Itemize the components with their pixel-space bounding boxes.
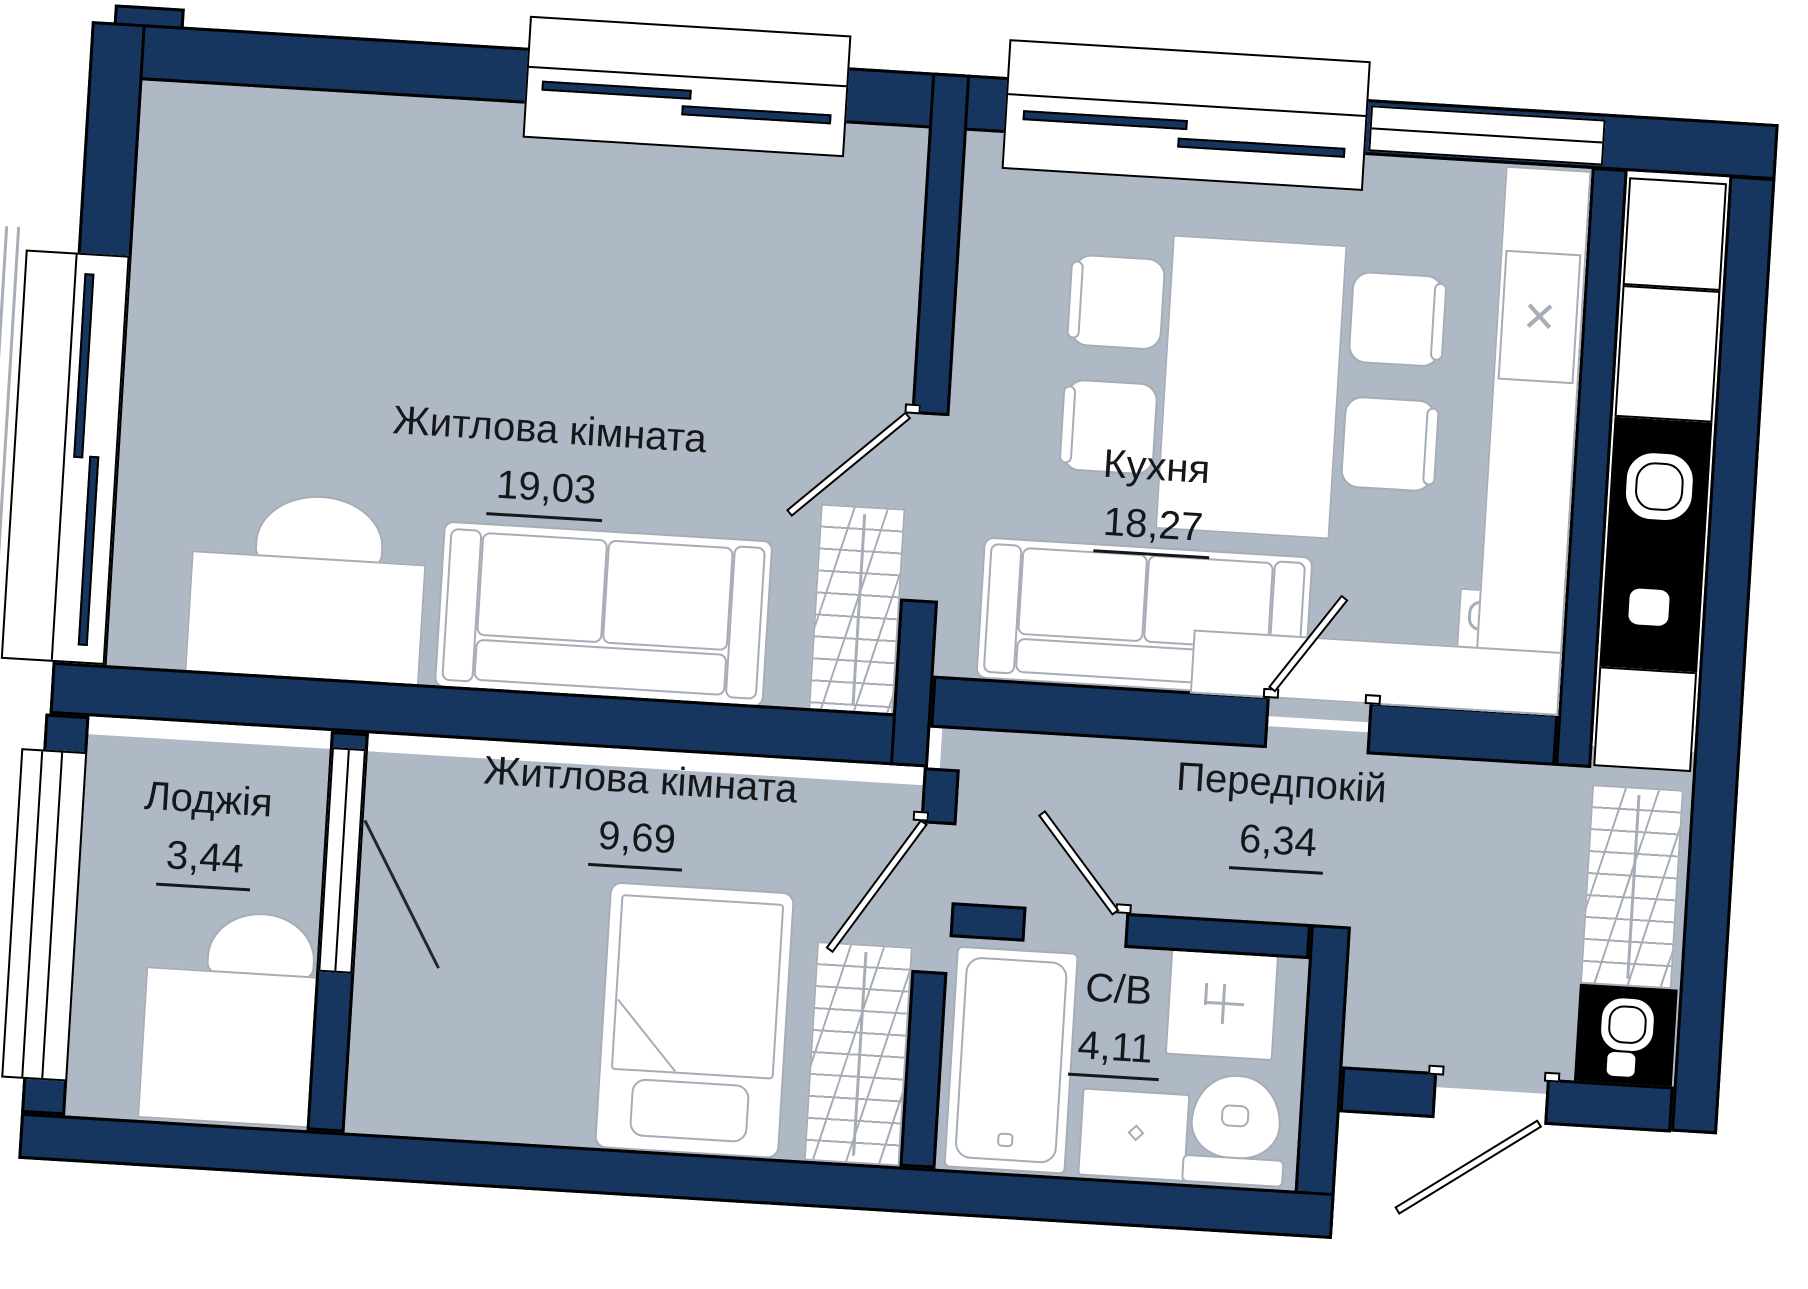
desk xyxy=(184,550,426,686)
room-name: Лоджія xyxy=(143,770,274,830)
vent-duct-icon xyxy=(1598,995,1657,1054)
window-sash xyxy=(1023,110,1188,130)
room-label-loggia: Лоджія 3,44 xyxy=(139,770,274,893)
wall-bathroom-top-left xyxy=(950,902,1027,942)
door-entrance xyxy=(1394,1119,1542,1214)
right-cabinet-box xyxy=(1623,177,1727,291)
room-label-kitchen: Кухня 18,27 xyxy=(1093,437,1216,559)
window-sash xyxy=(78,456,100,646)
room-label-living2: Житлова кімната 9,69 xyxy=(478,744,799,878)
right-cabinet-box xyxy=(1615,285,1721,423)
vent-duct-icon xyxy=(1604,1049,1638,1079)
door-jamb xyxy=(1544,1072,1561,1083)
sofa-living-room-1 xyxy=(434,520,774,707)
bed-pillow xyxy=(629,1078,750,1143)
apartment-floor-plan: ✕ xyxy=(3,2,1802,1285)
washing-machine xyxy=(1165,949,1279,1061)
vent-duct-icon xyxy=(1626,586,1672,629)
sofa-cushion xyxy=(1018,546,1149,642)
vent-x-icon: ✕ xyxy=(1520,291,1558,342)
wall-entrance-right xyxy=(1544,1079,1674,1133)
wardrobe-living-room-2 xyxy=(804,941,913,1166)
sink-drain-icon xyxy=(1127,1124,1144,1141)
bathroom-sink xyxy=(1077,1088,1190,1182)
door-jamb xyxy=(1428,1065,1445,1076)
room-area: 3,44 xyxy=(156,829,253,892)
room-area: 18,27 xyxy=(1093,495,1212,559)
wall-entrance-left xyxy=(1340,1066,1438,1118)
dining-chair xyxy=(1069,253,1166,350)
room-label-hallway: Передпокій 6,34 xyxy=(1171,751,1388,879)
wardrobe-living-room-1 xyxy=(808,503,905,715)
drain-icon xyxy=(997,1132,1014,1147)
room-name: С/В xyxy=(1072,961,1166,1018)
room-area: 9,69 xyxy=(588,809,685,872)
room-area: 6,34 xyxy=(1229,812,1326,875)
window-sash xyxy=(73,273,94,458)
door-jamb xyxy=(1365,694,1382,705)
toilet-inner xyxy=(1221,1104,1250,1128)
room-area: 4,11 xyxy=(1068,1019,1162,1081)
hallway-wardrobe xyxy=(1580,784,1684,989)
sofa-cushion xyxy=(602,539,734,651)
loggia-desk xyxy=(137,966,336,1129)
vent-duct-icon xyxy=(1622,450,1696,524)
window-sash xyxy=(1177,138,1345,158)
floor-plan-page: ✕ xyxy=(0,0,1808,1289)
dining-chair xyxy=(1340,395,1437,492)
right-cabinet-box xyxy=(1593,666,1697,772)
bed-mattress xyxy=(611,894,784,1080)
room-label-bathroom: С/В 4,11 xyxy=(1068,961,1166,1081)
bathtub xyxy=(943,946,1078,1175)
room-name: Кухня xyxy=(1097,437,1216,496)
dining-chair xyxy=(1347,271,1444,368)
window-sash xyxy=(541,81,691,100)
sofa-cushion xyxy=(477,531,609,643)
window-living1-top xyxy=(523,16,852,157)
room-label-living1: Житлова кімната 19,03 xyxy=(387,394,708,528)
window-sash xyxy=(681,105,831,124)
window-kitchen-top xyxy=(1002,39,1371,191)
room-area: 19,03 xyxy=(486,458,605,522)
